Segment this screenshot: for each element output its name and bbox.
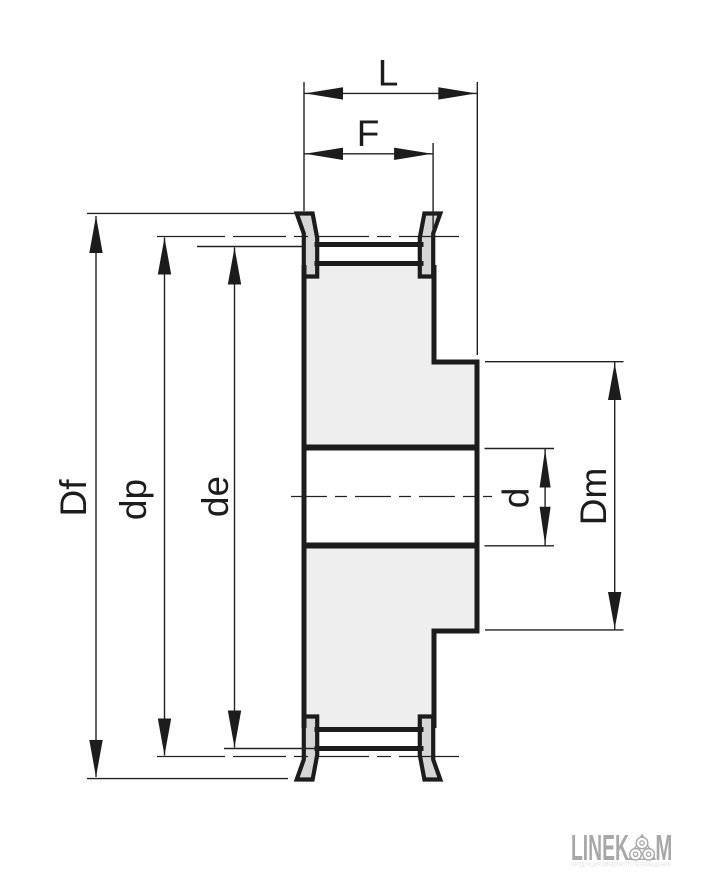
svg-text:Dm: Dm <box>573 468 614 526</box>
svg-text:Df: Df <box>53 479 94 517</box>
svg-text:de: de <box>195 476 236 517</box>
svg-text:F: F <box>357 113 380 154</box>
svg-text:L: L <box>378 53 399 94</box>
svg-text:d: d <box>496 488 537 509</box>
svg-text:ПРОДУКЦИЯ ЛИНЕЙНОГО ПЕРЕМЕЩЕНИ: ПРОДУКЦИЯ ЛИНЕЙНОГО ПЕРЕМЕЩЕНИЯ <box>571 861 671 869</box>
svg-text:dp: dp <box>113 479 154 520</box>
